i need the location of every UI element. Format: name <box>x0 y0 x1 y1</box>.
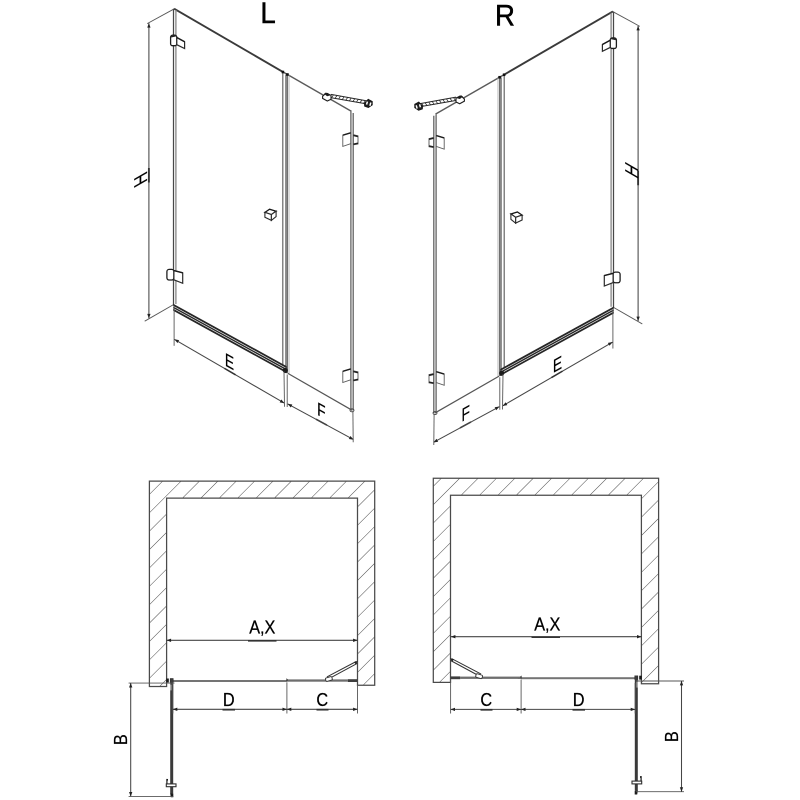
svg-text:E: E <box>553 351 562 378</box>
svg-text:A,X: A,X <box>534 613 561 634</box>
svg-text:B: B <box>661 731 682 742</box>
svg-text:D: D <box>223 689 235 710</box>
svg-text:B: B <box>110 734 131 745</box>
svg-text:R: R <box>495 0 515 33</box>
svg-text:H: H <box>130 168 151 191</box>
svg-text:C: C <box>316 689 328 710</box>
svg-text:C: C <box>480 689 492 710</box>
svg-text:A,X: A,X <box>249 616 276 637</box>
svg-text:E: E <box>225 348 234 375</box>
svg-text:H: H <box>621 159 642 182</box>
svg-text:L: L <box>260 0 275 30</box>
svg-text:D: D <box>573 689 585 710</box>
